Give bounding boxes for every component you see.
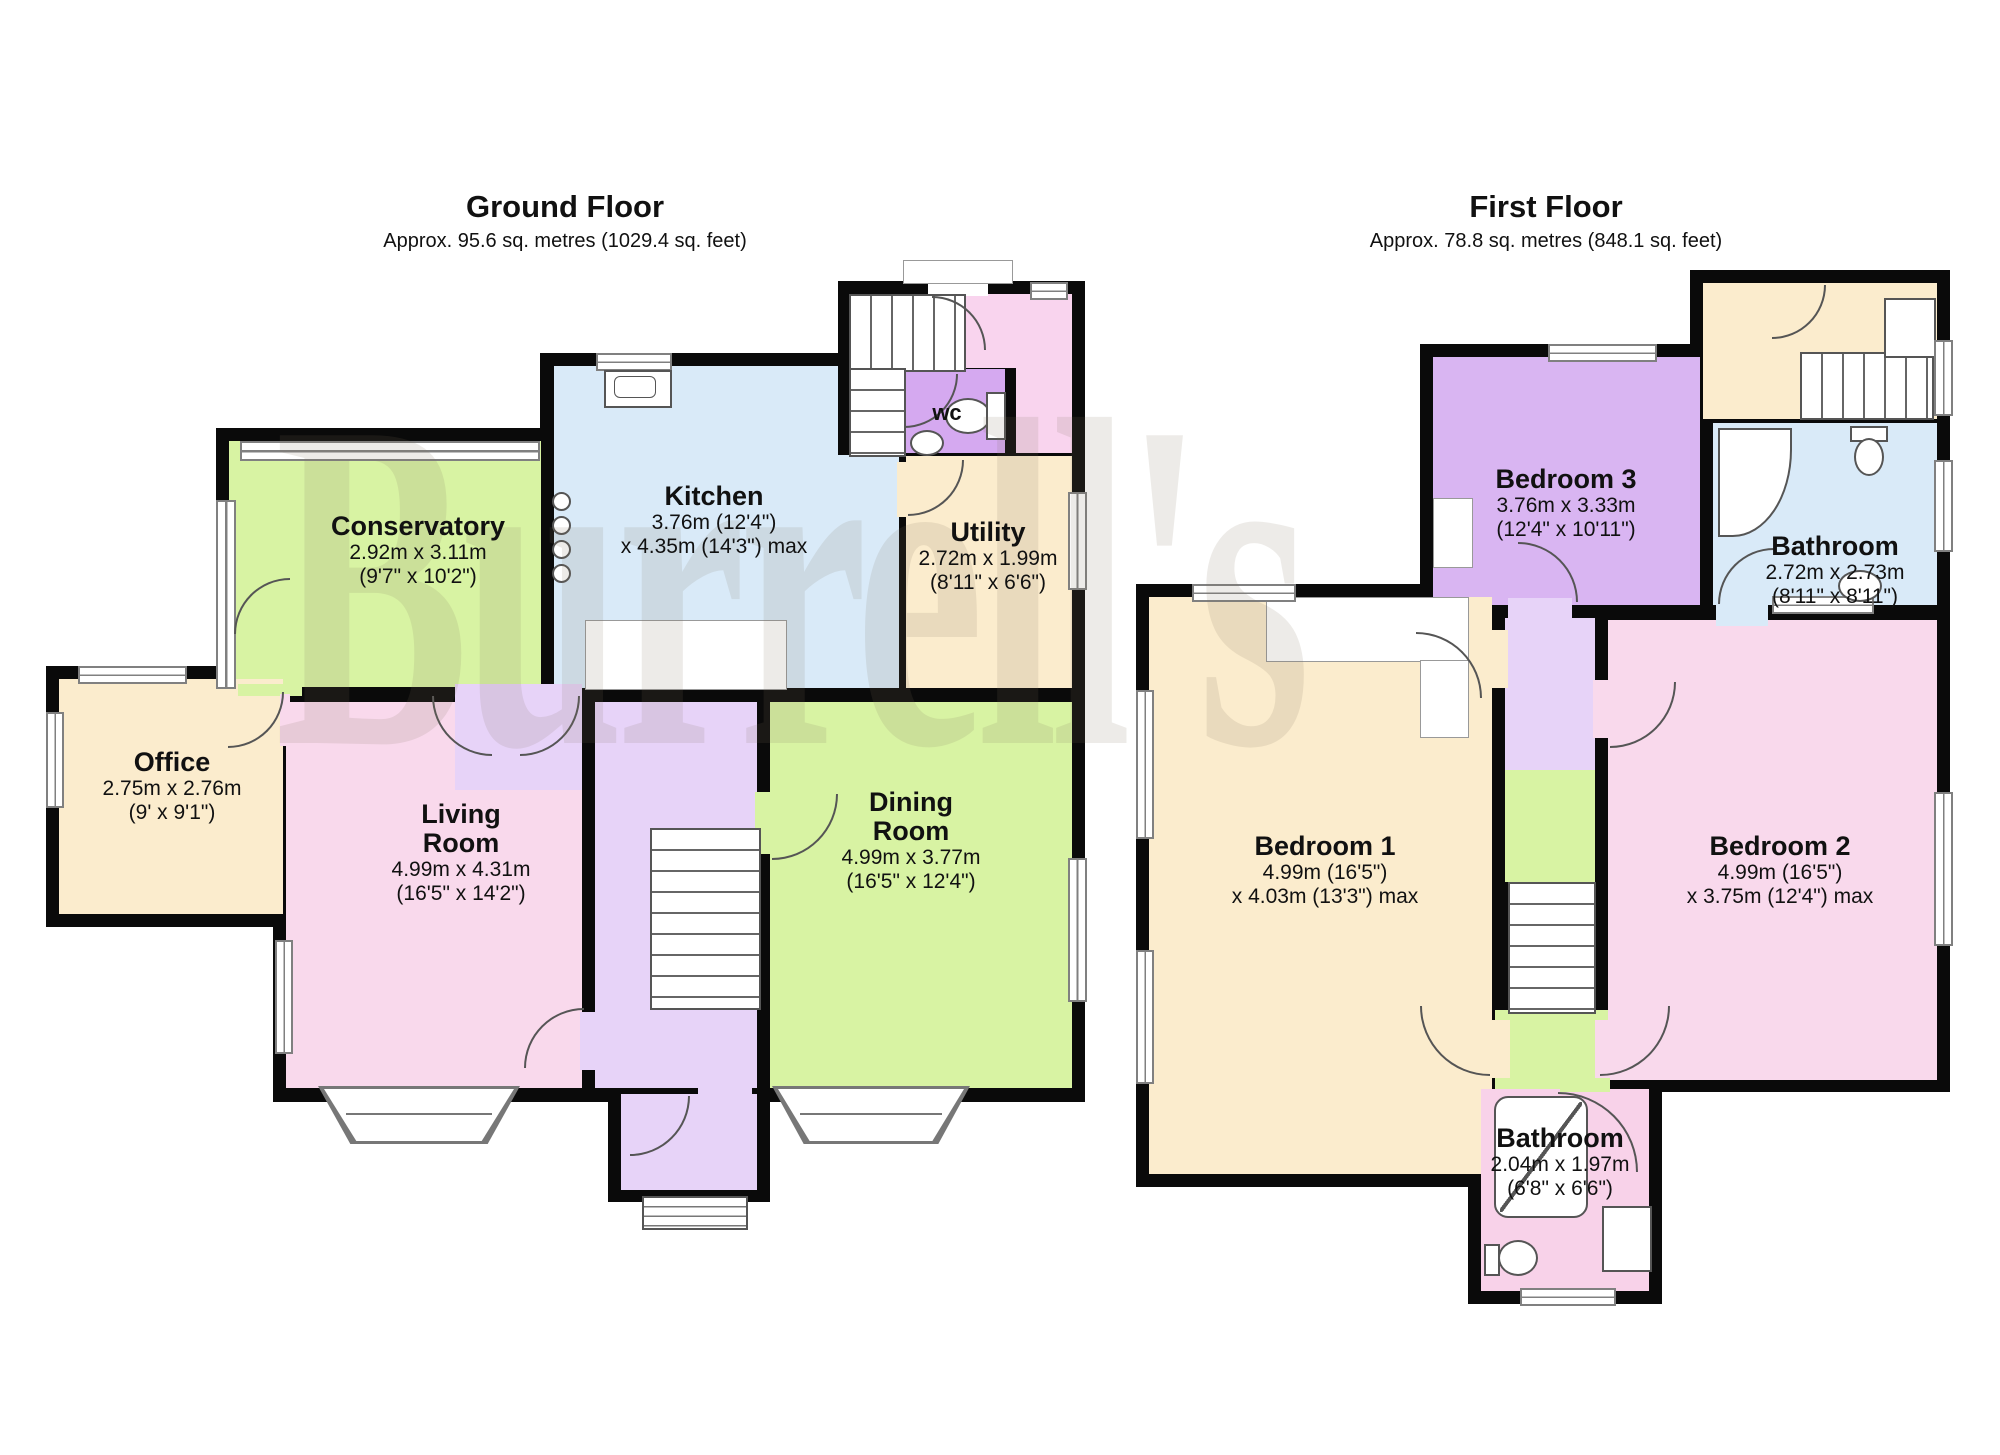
label-bathroom-lower: Bathroom 2.04m x 1.97m (6'8" x 6'6") <box>1420 1124 1700 1201</box>
room-dims-metric: 4.99m (16'5") <box>1640 861 1920 885</box>
room-dims-imperial: x 4.35m (14'3") max <box>574 535 854 559</box>
bay-window <box>772 1086 970 1144</box>
label-wc: wc <box>917 400 977 426</box>
stair-winder <box>1884 298 1936 358</box>
room-dims-metric: 2.92m x 3.11m <box>278 541 558 565</box>
room-dims-imperial: (16'5" x 14'2") <box>321 882 601 906</box>
window <box>216 500 236 689</box>
room-name: Conservatory <box>278 512 558 541</box>
room-dims-metric: 2.72m x 2.73m <box>1695 561 1975 585</box>
room-kitchen <box>554 366 838 466</box>
window <box>596 353 672 371</box>
bay-glass <box>778 1089 964 1141</box>
room-name: Utility <box>848 518 1128 547</box>
label-conservatory: Conservatory 2.92m x 3.11m (9'7" x 10'2"… <box>278 512 558 589</box>
bay-glazing-bar <box>800 1113 943 1115</box>
room-name: Bathroom <box>1695 532 1975 561</box>
room-name: wc <box>932 400 961 425</box>
room-dining <box>770 702 1072 1088</box>
label-utility: Utility 2.72m x 1.99m (8'11" x 6'6") <box>848 518 1128 595</box>
room-dims-metric: 3.76m (12'4") <box>574 511 854 535</box>
kitchen-sink-bowl <box>614 376 656 398</box>
ground-floor-header: Ground Floor Approx. 95.6 sq. metres (10… <box>365 190 765 253</box>
bay-glazing-bar <box>346 1113 491 1115</box>
room-dims-imperial: (8'11" x 6'6") <box>848 571 1128 595</box>
window <box>1136 950 1154 1084</box>
room-name: Bedroom 1 <box>1185 832 1465 861</box>
door-opening <box>1488 630 1508 688</box>
floorplan-canvas: Burrell's Ground Floor Approx. 95.6 sq. … <box>0 0 2000 1455</box>
hob-burner <box>552 492 571 511</box>
room-dims-metric: 4.99m x 4.31m <box>321 858 601 882</box>
label-bedroom-1: Bedroom 1 4.99m (16'5") x 4.03m (13'3") … <box>1185 832 1465 909</box>
room-dims-imperial: (6'8" x 6'6") <box>1420 1177 1700 1201</box>
room-dims-imperial: x 4.03m (13'3") max <box>1185 885 1465 909</box>
window <box>1520 1288 1616 1306</box>
window <box>1068 858 1087 1002</box>
toilet <box>1854 438 1884 476</box>
ground-floor-title: Ground Floor <box>365 190 765 224</box>
stair-landing <box>1016 368 1072 453</box>
room-dims-imperial: (9'7" x 10'2") <box>278 565 558 589</box>
label-living-room: Living Room 4.99m x 4.31m (16'5" x 14'2"… <box>321 800 601 906</box>
window <box>240 441 540 461</box>
window <box>1136 690 1154 839</box>
window <box>1934 340 1953 416</box>
window <box>1934 792 1953 946</box>
label-bathroom-upper: Bathroom 2.72m x 2.73m (8'11" x 8'11") <box>1695 532 1975 609</box>
room-name: Office <box>32 748 312 777</box>
first-floor-area: Approx. 78.8 sq. metres (848.1 sq. feet) <box>1346 230 1746 253</box>
label-office: Office 2.75m x 2.76m (9' x 9'1") <box>32 748 312 825</box>
window <box>275 940 293 1054</box>
first-floor-header: First Floor Approx. 78.8 sq. metres (848… <box>1346 190 1746 253</box>
label-kitchen: Kitchen 3.76m (12'4") x 4.35m (14'3") ma… <box>574 482 854 559</box>
label-bedroom-2: Bedroom 2 4.99m (16'5") x 3.75m (12'4") … <box>1640 832 1920 909</box>
wc-basin <box>910 430 944 456</box>
room-name: Dining Room <box>836 788 986 846</box>
wc-cistern <box>986 392 1006 440</box>
staircase <box>1800 352 1934 420</box>
room-name: Kitchen <box>574 482 854 511</box>
staircase <box>849 368 906 457</box>
wall-stub <box>1005 368 1016 453</box>
door-canopy <box>903 260 1013 284</box>
room-name: Bathroom <box>1420 1124 1700 1153</box>
ground-floor-area: Approx. 95.6 sq. metres (1029.4 sq. feet… <box>365 230 765 253</box>
door-opening <box>1490 1020 1510 1078</box>
basin <box>1602 1206 1652 1272</box>
window <box>1192 584 1296 602</box>
staircase <box>1508 882 1596 1014</box>
room-dims-metric: 2.04m x 1.97m <box>1420 1153 1700 1177</box>
label-dining-room: Dining Room 4.99m x 3.77m (16'5" x 12'4"… <box>771 788 1051 894</box>
front-door-opening <box>698 1084 752 1098</box>
landing <box>1505 770 1595 882</box>
porch-steps <box>642 1196 748 1230</box>
landing <box>1505 618 1595 770</box>
room-dims-imperial: x 3.75m (12'4") max <box>1640 885 1920 909</box>
window <box>1548 344 1657 362</box>
door-opening <box>1560 1078 1610 1092</box>
room-name: Bedroom 3 <box>1426 465 1706 494</box>
room-dims-imperial: (12'4" x 10'11") <box>1426 518 1706 542</box>
toilet <box>1498 1240 1538 1276</box>
room-dims-imperial: (8'11" x 8'11") <box>1695 585 1975 609</box>
window <box>78 666 187 684</box>
room-dims-imperial: (16'5" x 12'4") <box>771 870 1051 894</box>
room-name: Living Room <box>386 800 536 858</box>
kitchen-counter <box>585 620 787 690</box>
room-name: Bedroom 2 <box>1640 832 1920 861</box>
label-bedroom-3: Bedroom 3 3.76m x 3.33m (12'4" x 10'11") <box>1426 465 1706 542</box>
first-floor-title: First Floor <box>1346 190 1746 224</box>
room-dims-metric: 4.99m x 3.77m <box>771 846 1051 870</box>
bay-glass <box>324 1089 514 1141</box>
room-dims-imperial: (9' x 9'1") <box>32 801 312 825</box>
window <box>1030 282 1068 300</box>
room-dims-metric: 4.99m (16'5") <box>1185 861 1465 885</box>
room-dims-metric: 3.76m x 3.33m <box>1426 494 1706 518</box>
room-dims-metric: 2.75m x 2.76m <box>32 777 312 801</box>
staircase <box>650 828 761 1010</box>
bay-window <box>318 1086 520 1144</box>
room-dims-metric: 2.72m x 1.99m <box>848 547 1128 571</box>
